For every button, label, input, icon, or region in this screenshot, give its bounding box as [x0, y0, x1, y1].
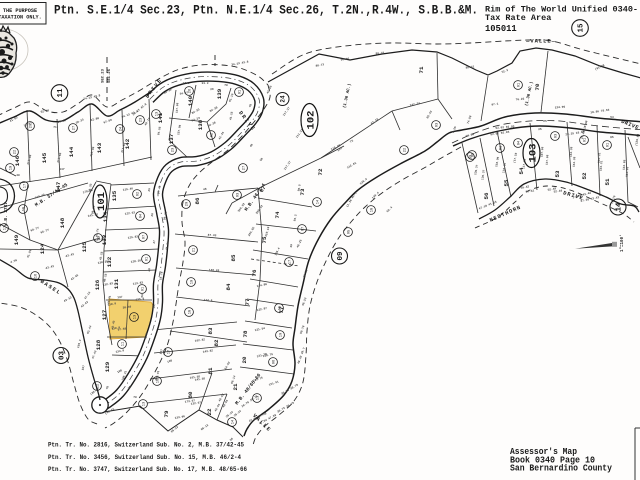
svg-text:134: 134: [102, 211, 109, 222]
svg-text:03: 03: [59, 351, 67, 361]
svg-text:20: 20: [210, 88, 214, 91]
svg-text:27: 27: [72, 126, 76, 130]
svg-text:11: 11: [57, 88, 65, 98]
svg-text:128: 128: [95, 339, 102, 350]
svg-text:11: 11: [121, 341, 125, 346]
svg-text:127: 127: [101, 309, 108, 320]
svg-text:13: 13: [142, 402, 146, 406]
svg-text:137: 137: [59, 168, 64, 171]
svg-text:SEC.26: SEC.26: [108, 68, 112, 82]
svg-text:53: 53: [554, 170, 561, 177]
svg-text:07: 07: [142, 235, 146, 239]
svg-text:W.B. 3747: W.B. 3747: [4, 202, 9, 226]
svg-text:16: 16: [34, 274, 38, 278]
svg-text:77: 77: [244, 298, 251, 305]
svg-text:—VALLE—: —VALLE—: [525, 39, 556, 45]
svg-text:SEC.23: SEC.23: [102, 68, 106, 82]
svg-text:85: 85: [610, 136, 614, 139]
svg-text:80: 80: [187, 391, 194, 398]
svg-text:09: 09: [337, 251, 345, 261]
svg-text:06: 06: [272, 360, 276, 364]
svg-text:137: 137: [117, 296, 123, 299]
svg-text:22: 22: [206, 408, 213, 415]
svg-text:103: 103: [527, 144, 539, 163]
svg-text:02: 02: [136, 192, 140, 196]
svg-text:17.3: 17.3: [183, 82, 190, 85]
svg-text:51: 51: [604, 178, 611, 185]
svg-text:19: 19: [9, 166, 13, 170]
svg-text:03: 03: [435, 123, 439, 127]
svg-text:139: 139: [216, 88, 223, 99]
svg-text:20: 20: [185, 202, 189, 206]
svg-text:01: 01: [238, 89, 242, 94]
svg-text:04: 04: [139, 213, 143, 218]
svg-text:74: 74: [274, 211, 281, 218]
svg-text:17: 17: [288, 260, 292, 264]
svg-text:70: 70: [534, 83, 541, 90]
svg-text:147: 147: [55, 181, 62, 192]
svg-text:129: 129: [104, 361, 111, 372]
svg-text:148: 148: [59, 217, 66, 228]
svg-text:143: 143: [96, 142, 103, 153]
svg-text:01: 01: [499, 145, 503, 150]
svg-text:85: 85: [230, 254, 237, 261]
svg-text:56: 56: [483, 192, 490, 199]
svg-text:145: 145: [41, 152, 48, 163]
svg-text:23: 23: [171, 148, 175, 152]
svg-text:140: 140: [187, 95, 194, 106]
svg-text:149: 149: [13, 234, 20, 245]
svg-text:25: 25: [543, 120, 547, 123]
svg-text:Ptn. S.E.1/4 Sec.23, Ptn. N.E.: Ptn. S.E.1/4 Sec.23, Ptn. N.E.1/4 Sec.26…: [54, 3, 478, 18]
svg-text:25: 25: [538, 128, 542, 131]
svg-text:10: 10: [279, 333, 283, 337]
svg-text:87.43: 87.43: [208, 234, 217, 237]
svg-text:71: 71: [418, 66, 425, 73]
svg-text:76: 76: [251, 269, 258, 276]
svg-text:Ptn. Tr. No. 2816, Switzerland: Ptn. Tr. No. 2816, Switzerland Sub. No. …: [48, 442, 244, 450]
svg-text:20: 20: [241, 356, 248, 363]
svg-text:17: 17: [3, 226, 7, 230]
svg-text:78: 78: [242, 330, 249, 337]
svg-text:18: 18: [188, 310, 192, 314]
svg-text:70: 70: [224, 84, 228, 87]
svg-text:52: 52: [581, 172, 588, 179]
svg-text:THE PURPOSE: THE PURPOSE: [3, 8, 37, 14]
svg-text:1"=100': 1"=100': [620, 234, 625, 252]
svg-text:22: 22: [403, 148, 407, 152]
svg-text:124: 124: [39, 243, 46, 254]
svg-text:86: 86: [194, 197, 201, 204]
svg-text:14: 14: [316, 199, 320, 204]
svg-text:01: 01: [141, 286, 145, 291]
svg-text:14: 14: [231, 419, 235, 424]
svg-text:04: 04: [517, 140, 521, 145]
svg-text:13: 13: [155, 112, 159, 116]
svg-text:15: 15: [278, 306, 282, 310]
svg-text:33.3: 33.3: [202, 82, 209, 85]
svg-text:24: 24: [280, 95, 287, 103]
svg-text:135: 135: [111, 190, 118, 201]
svg-text:03: 03: [554, 134, 558, 138]
svg-text:148.43: 148.43: [209, 269, 220, 273]
svg-text:18: 18: [22, 207, 26, 211]
svg-text:15: 15: [578, 23, 586, 33]
svg-text:81: 81: [207, 367, 214, 374]
svg-text:55: 55: [503, 179, 510, 186]
svg-text:Tax Rate Area: Tax Rate Area: [485, 13, 551, 23]
svg-text:126: 126: [94, 279, 101, 290]
svg-text:84: 84: [225, 283, 232, 290]
svg-text:01: 01: [606, 142, 610, 147]
svg-text:105011: 105011: [485, 24, 517, 34]
svg-text:05: 05: [347, 230, 351, 234]
svg-text:146: 146: [14, 155, 21, 166]
svg-text:40: 40: [16, 174, 20, 177]
svg-text:125: 125: [81, 241, 88, 252]
svg-text:27: 27: [242, 166, 246, 170]
svg-text:26: 26: [188, 89, 192, 93]
svg-text:83: 83: [207, 327, 214, 334]
svg-text:San Bernardino County: San Bernardino County: [510, 463, 612, 474]
svg-text:23: 23: [139, 118, 143, 122]
svg-text:TAXATION ONLY.: TAXATION ONLY.: [0, 15, 42, 21]
svg-text:21: 21: [192, 247, 196, 252]
svg-text:131: 131: [113, 278, 120, 289]
svg-text:138: 138: [197, 119, 204, 130]
svg-text:01: 01: [517, 82, 521, 87]
svg-text:01: 01: [583, 137, 587, 142]
svg-text:Ptn. Tr. No. 3747, Switzerland: Ptn. Tr. No. 3747, Switzerland Sub. No. …: [48, 466, 247, 474]
svg-text:19: 19: [190, 280, 194, 284]
svg-text:Ptn. Tr. No. 3456, Switzerland: Ptn. Tr. No. 3456, Switzerland Sub. No. …: [48, 454, 241, 462]
svg-text:22: 22: [13, 150, 17, 154]
svg-text:82: 82: [213, 339, 220, 346]
svg-text:53: 53: [610, 116, 614, 119]
svg-text:137: 137: [168, 133, 175, 144]
svg-text:144: 144: [68, 146, 75, 157]
svg-text:01: 01: [145, 256, 149, 261]
svg-text:17: 17: [23, 184, 27, 188]
svg-text:24: 24: [119, 126, 123, 131]
svg-text:174.6: 174.6: [204, 299, 213, 303]
svg-text:79: 79: [163, 410, 170, 417]
svg-text:70: 70: [133, 396, 137, 399]
svg-text:13: 13: [133, 315, 137, 319]
svg-text:02: 02: [210, 133, 214, 137]
svg-text:03: 03: [236, 193, 240, 197]
svg-text:07: 07: [301, 227, 305, 231]
svg-text:72: 72: [317, 168, 324, 175]
svg-text:18: 18: [370, 208, 374, 212]
svg-text:30: 30: [469, 155, 473, 159]
svg-text:17: 17: [167, 350, 171, 354]
svg-text:101: 101: [96, 192, 108, 211]
svg-text:71: 71: [53, 126, 57, 129]
